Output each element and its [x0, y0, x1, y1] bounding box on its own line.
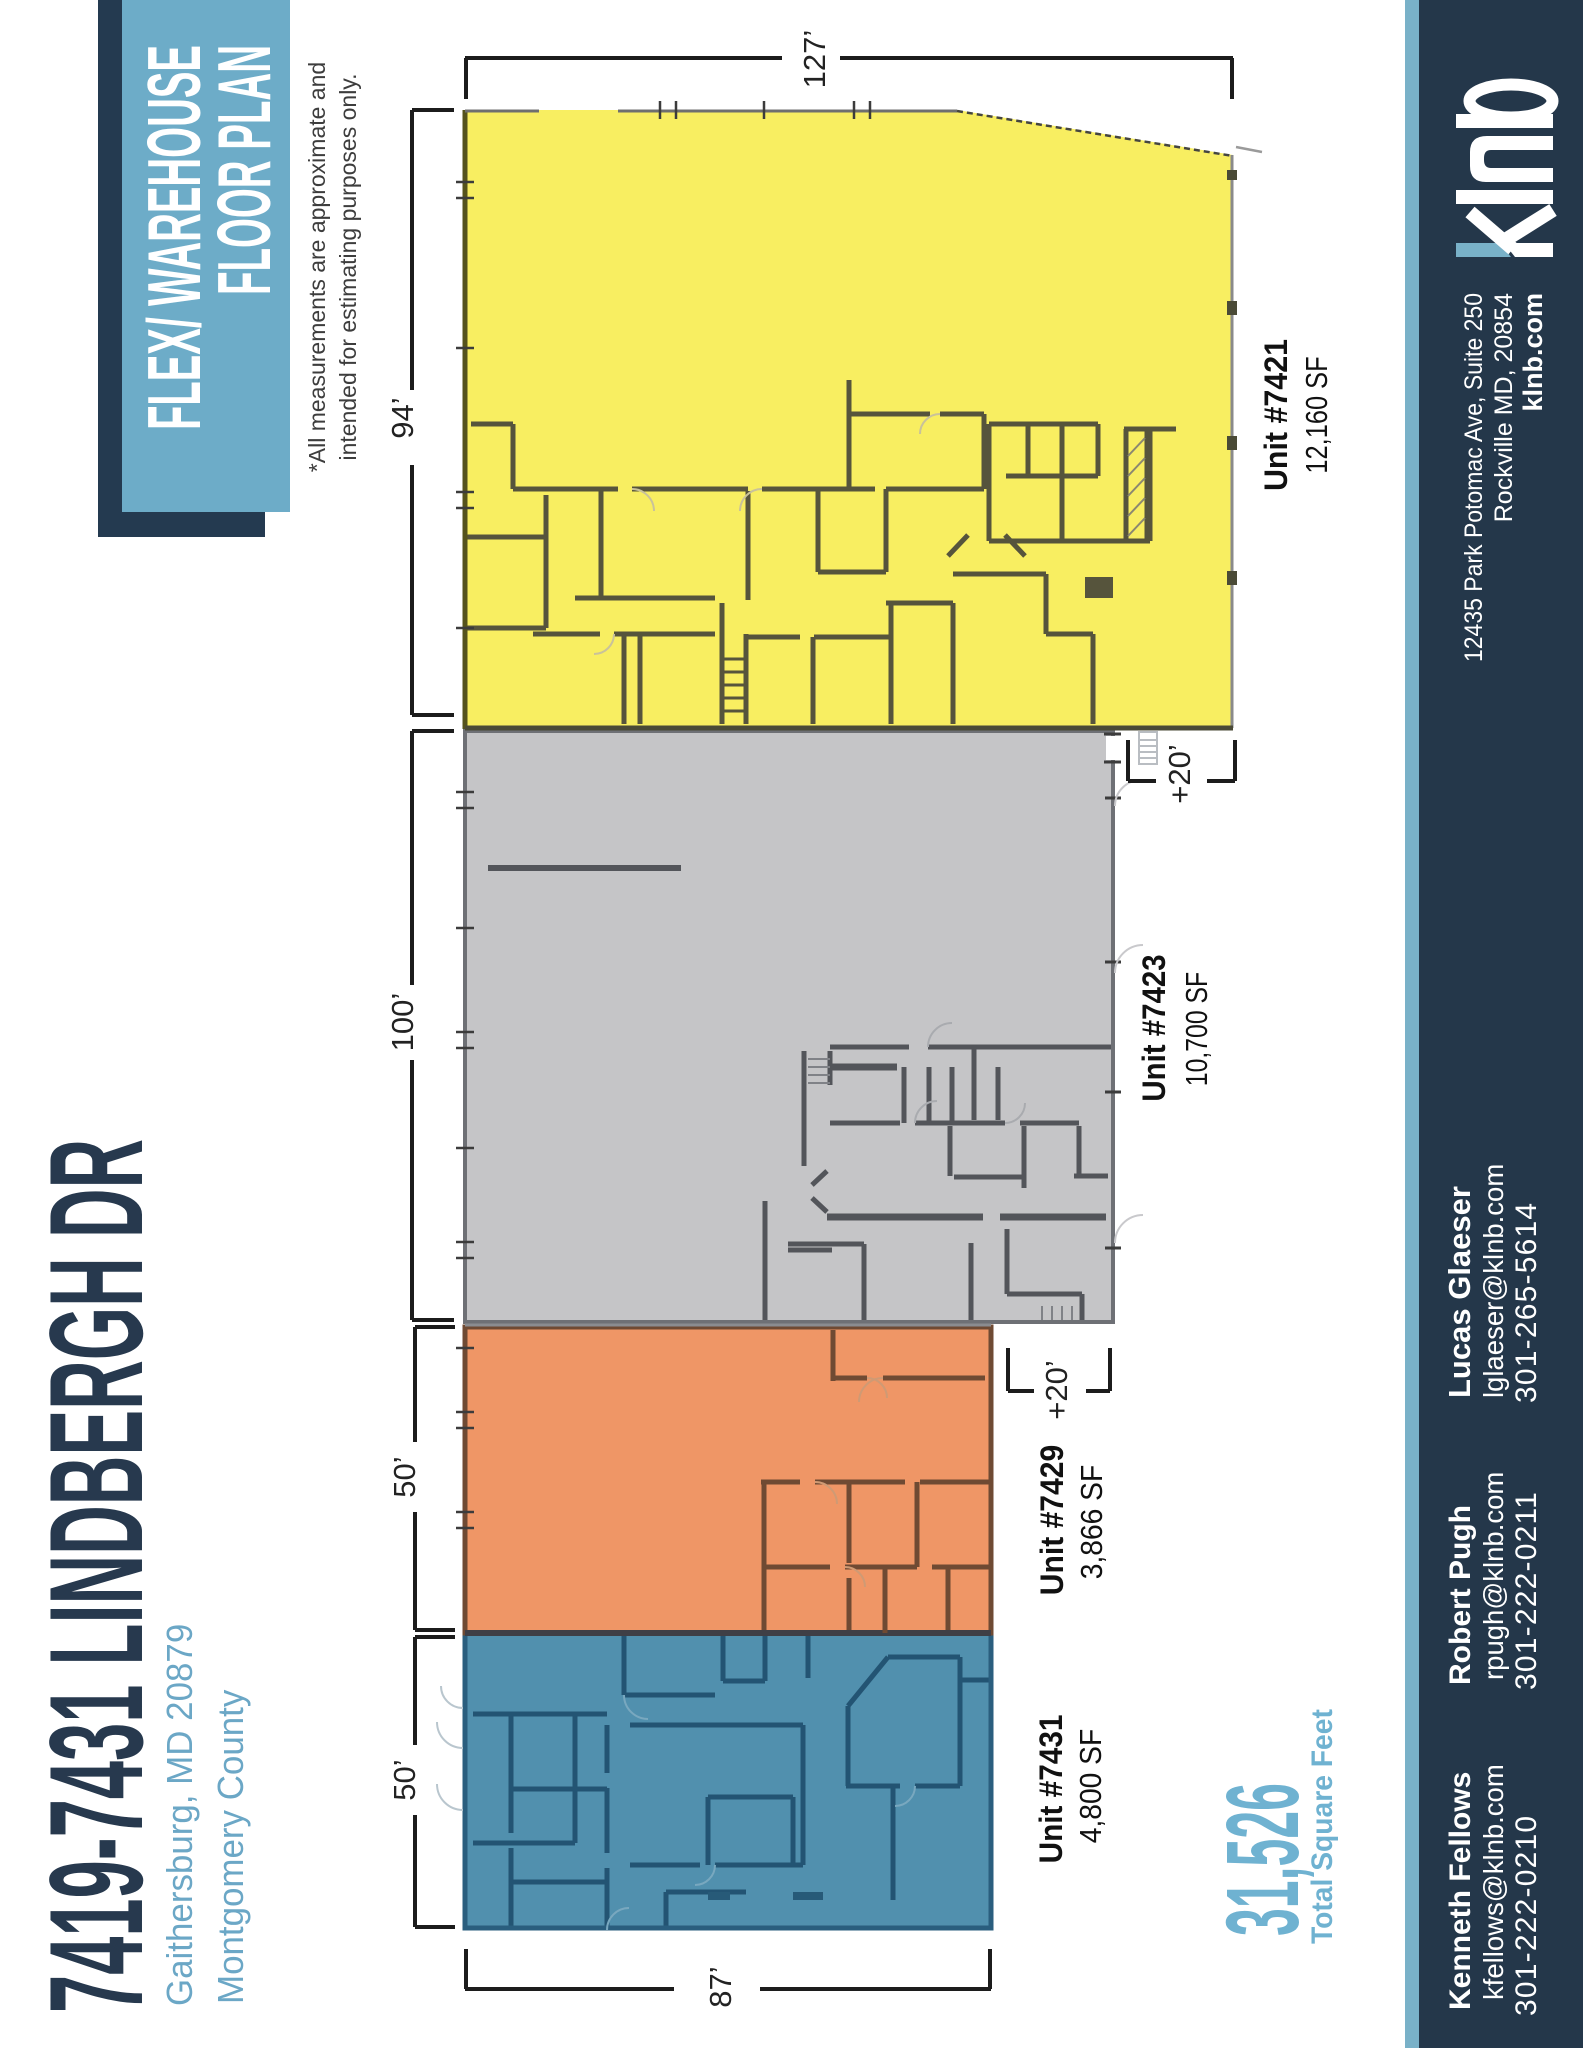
svg-text:Kenneth Fellows: Kenneth Fellows: [1444, 1772, 1477, 2010]
svg-text:Total Square Feet: Total Square Feet: [1306, 1709, 1339, 1944]
svg-text:Unit #7423: Unit #7423: [1136, 954, 1172, 1101]
svg-text:100’: 100’: [385, 993, 420, 1052]
svg-text:Unit #7429: Unit #7429: [1034, 1445, 1070, 1595]
svg-text:12435 Park Potomac Ave, Suite: 12435 Park Potomac Ave, Suite 250: [1460, 293, 1488, 662]
svg-text:50’: 50’: [387, 1759, 422, 1800]
svg-text:klnb.com: klnb.com: [1518, 293, 1548, 412]
svg-text:Lucas Glaeser: Lucas Glaeser: [1442, 1186, 1477, 1398]
svg-text:87’: 87’: [703, 1966, 738, 2007]
svg-text:301-222-0210: 301-222-0210: [1510, 1815, 1543, 2016]
svg-text:Montgomery County: Montgomery County: [211, 1689, 252, 2004]
svg-text:+20’: +20’: [1162, 744, 1197, 803]
svg-text:Rockville MD, 20854: Rockville MD, 20854: [1490, 293, 1518, 522]
svg-text:301-265-5614: 301-265-5614: [1510, 1202, 1543, 1403]
svg-text:kfellows@klnb.com: kfellows@klnb.com: [1478, 1764, 1509, 2000]
svg-text:Unit #7421: Unit #7421: [1258, 339, 1294, 491]
svg-text:Robert Pugh: Robert Pugh: [1444, 1505, 1477, 1685]
svg-text:Unit #7431: Unit #7431: [1033, 1715, 1069, 1864]
svg-text:FLOOR PLAN: FLOOR PLAN: [202, 45, 286, 295]
svg-text:94’: 94’: [385, 397, 420, 438]
svg-text:127’: 127’: [797, 30, 832, 89]
svg-text:+20’: +20’: [1039, 1360, 1074, 1419]
svg-text:4,800 SF: 4,800 SF: [1074, 1729, 1109, 1843]
svg-text:*All measurements are approxim: *All measurements are approximate and: [304, 62, 330, 472]
svg-text:7419-7431 LINDBERGH DR: 7419-7431 LINDBERGH DR: [23, 1139, 171, 2013]
svg-text:31,526: 31,526: [1206, 1783, 1320, 1936]
svg-text:301-222-0211: 301-222-0211: [1510, 1491, 1543, 1690]
svg-text:lglaeser@klnb.com: lglaeser@klnb.com: [1478, 1164, 1509, 1398]
svg-text:intended for estimating purpos: intended for estimating purposes only.: [335, 74, 361, 461]
svg-text:3,866 SF: 3,866 SF: [1075, 1465, 1110, 1579]
svg-text:50’: 50’: [387, 1456, 422, 1497]
svg-text:12,160 SF: 12,160 SF: [1300, 356, 1335, 473]
svg-text:rpugh@klnb.com: rpugh@klnb.com: [1478, 1472, 1509, 1680]
svg-text:Gaithersburg, MD 20879: Gaithersburg, MD 20879: [160, 1624, 201, 2006]
svg-text:10,700 SF: 10,700 SF: [1179, 972, 1213, 1086]
